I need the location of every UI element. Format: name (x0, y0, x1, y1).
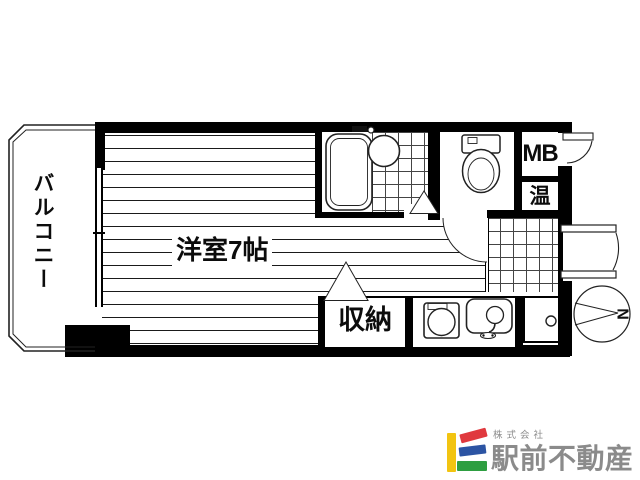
meter-box-door (563, 133, 593, 163)
meter-box-label: MB (522, 132, 558, 176)
bathroom-door-triangle (410, 191, 438, 214)
compass-north-label: N (614, 308, 631, 320)
room-door-swing (443, 218, 487, 262)
storage-door-triangle (324, 262, 368, 301)
logo-red-bar (459, 428, 487, 444)
bathtub-icon (326, 134, 372, 210)
cabinet-knob-icon (546, 316, 556, 326)
company-logo: 株式会社 駅前不動産 (445, 427, 630, 475)
company-name: 駅前不動産 (491, 437, 634, 477)
toilet-icon (462, 135, 500, 193)
bath-sink-icon (369, 136, 400, 167)
water-heater-label: 温 (522, 182, 558, 211)
kitchen-sink-icon (467, 299, 513, 339)
floorplan-page: N バルコニー 洋室7帖 収納 MB 温 株式会社 駅前不動産 (0, 0, 640, 480)
storage-label: 収納 (325, 296, 405, 345)
balcony-label: バルコニー (27, 172, 57, 292)
fixtures-layer: N (0, 0, 640, 480)
logo-yellow-bar (447, 433, 456, 472)
logo-blue-bar (459, 444, 487, 456)
entrance-door (561, 225, 619, 278)
north-compass: N (574, 286, 631, 342)
stove-burner-icon (424, 303, 459, 338)
bath-faucet-icon (352, 126, 374, 133)
logo-green-bar (457, 461, 487, 471)
western-room-label: 洋室7帖 (172, 229, 272, 268)
